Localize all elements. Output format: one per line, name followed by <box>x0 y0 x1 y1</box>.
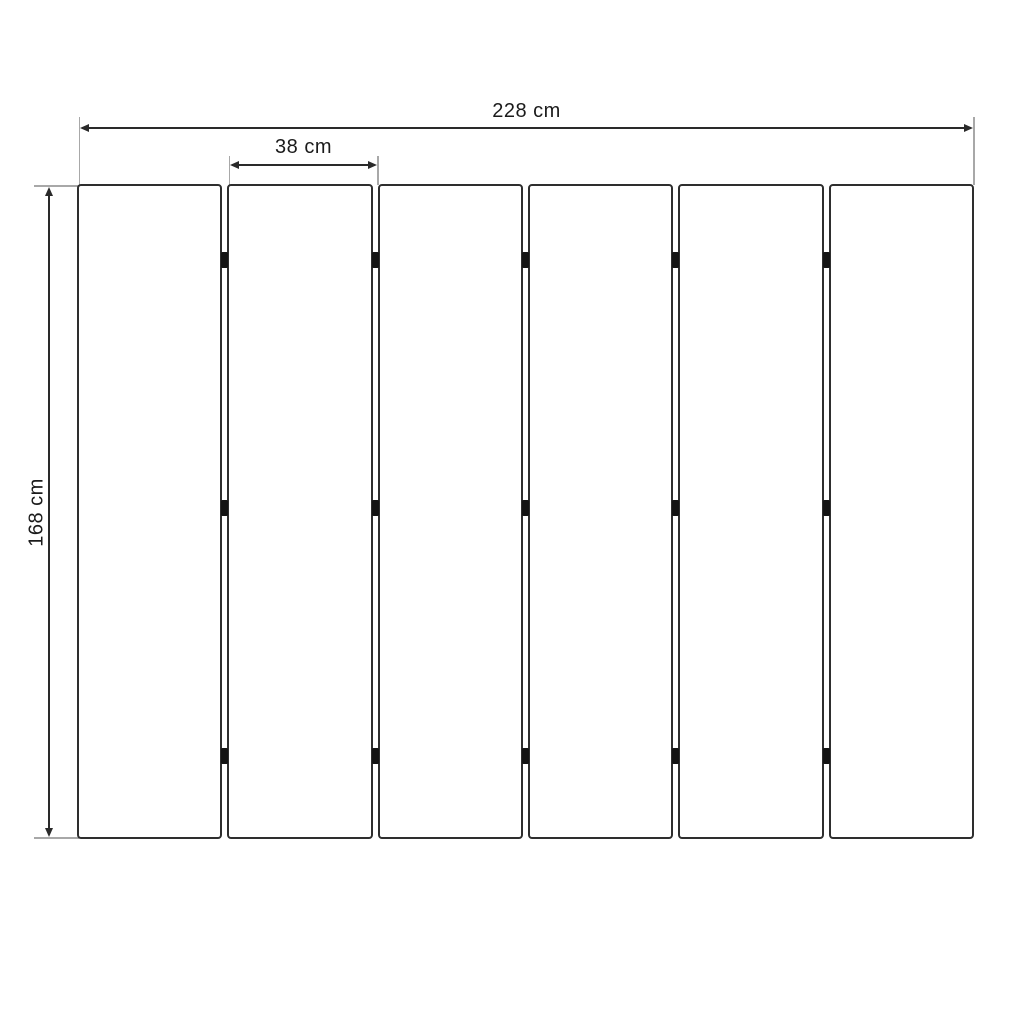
hinge-connector <box>672 252 679 268</box>
hinge-connector <box>823 748 830 764</box>
panels-row <box>77 184 974 839</box>
hinge-connector <box>672 500 679 516</box>
hinge-connector <box>372 748 379 764</box>
extension-line-height-top <box>34 185 79 187</box>
panel-dimension-diagram: 228 cm 38 cm 168 cm <box>0 0 1024 1024</box>
hinge-connector <box>221 748 228 764</box>
hinge-connector <box>672 748 679 764</box>
hinge-connector <box>372 500 379 516</box>
total-width-dimension-line <box>82 127 971 129</box>
hinge-connector <box>221 500 228 516</box>
hinge-connector <box>823 252 830 268</box>
hinge-connector <box>522 500 529 516</box>
arrow-right-icon <box>368 161 377 169</box>
panel-width-label: 38 cm <box>230 136 377 159</box>
extension-line-total-right <box>973 117 975 185</box>
hinge-connector <box>221 252 228 268</box>
panel-2 <box>227 184 372 839</box>
arrow-up-icon <box>45 187 53 196</box>
panel-4 <box>528 184 673 839</box>
extension-line-height-bottom <box>34 837 79 839</box>
arrow-left-icon <box>230 161 239 169</box>
panel-3 <box>378 184 523 839</box>
arrow-right-icon <box>964 124 973 132</box>
panel-1 <box>77 184 222 839</box>
extension-line-panel-right <box>377 156 379 185</box>
panel-height-label: 168 cm <box>26 468 49 558</box>
hinge-connector <box>522 748 529 764</box>
hinge-connector <box>823 500 830 516</box>
panel-width-dimension-line <box>232 164 375 166</box>
hinge-connector <box>372 252 379 268</box>
panel-5 <box>678 184 823 839</box>
arrow-left-icon <box>80 124 89 132</box>
total-width-label: 228 cm <box>80 100 973 123</box>
hinge-connector <box>522 252 529 268</box>
arrow-down-icon <box>45 828 53 837</box>
panel-6 <box>829 184 974 839</box>
